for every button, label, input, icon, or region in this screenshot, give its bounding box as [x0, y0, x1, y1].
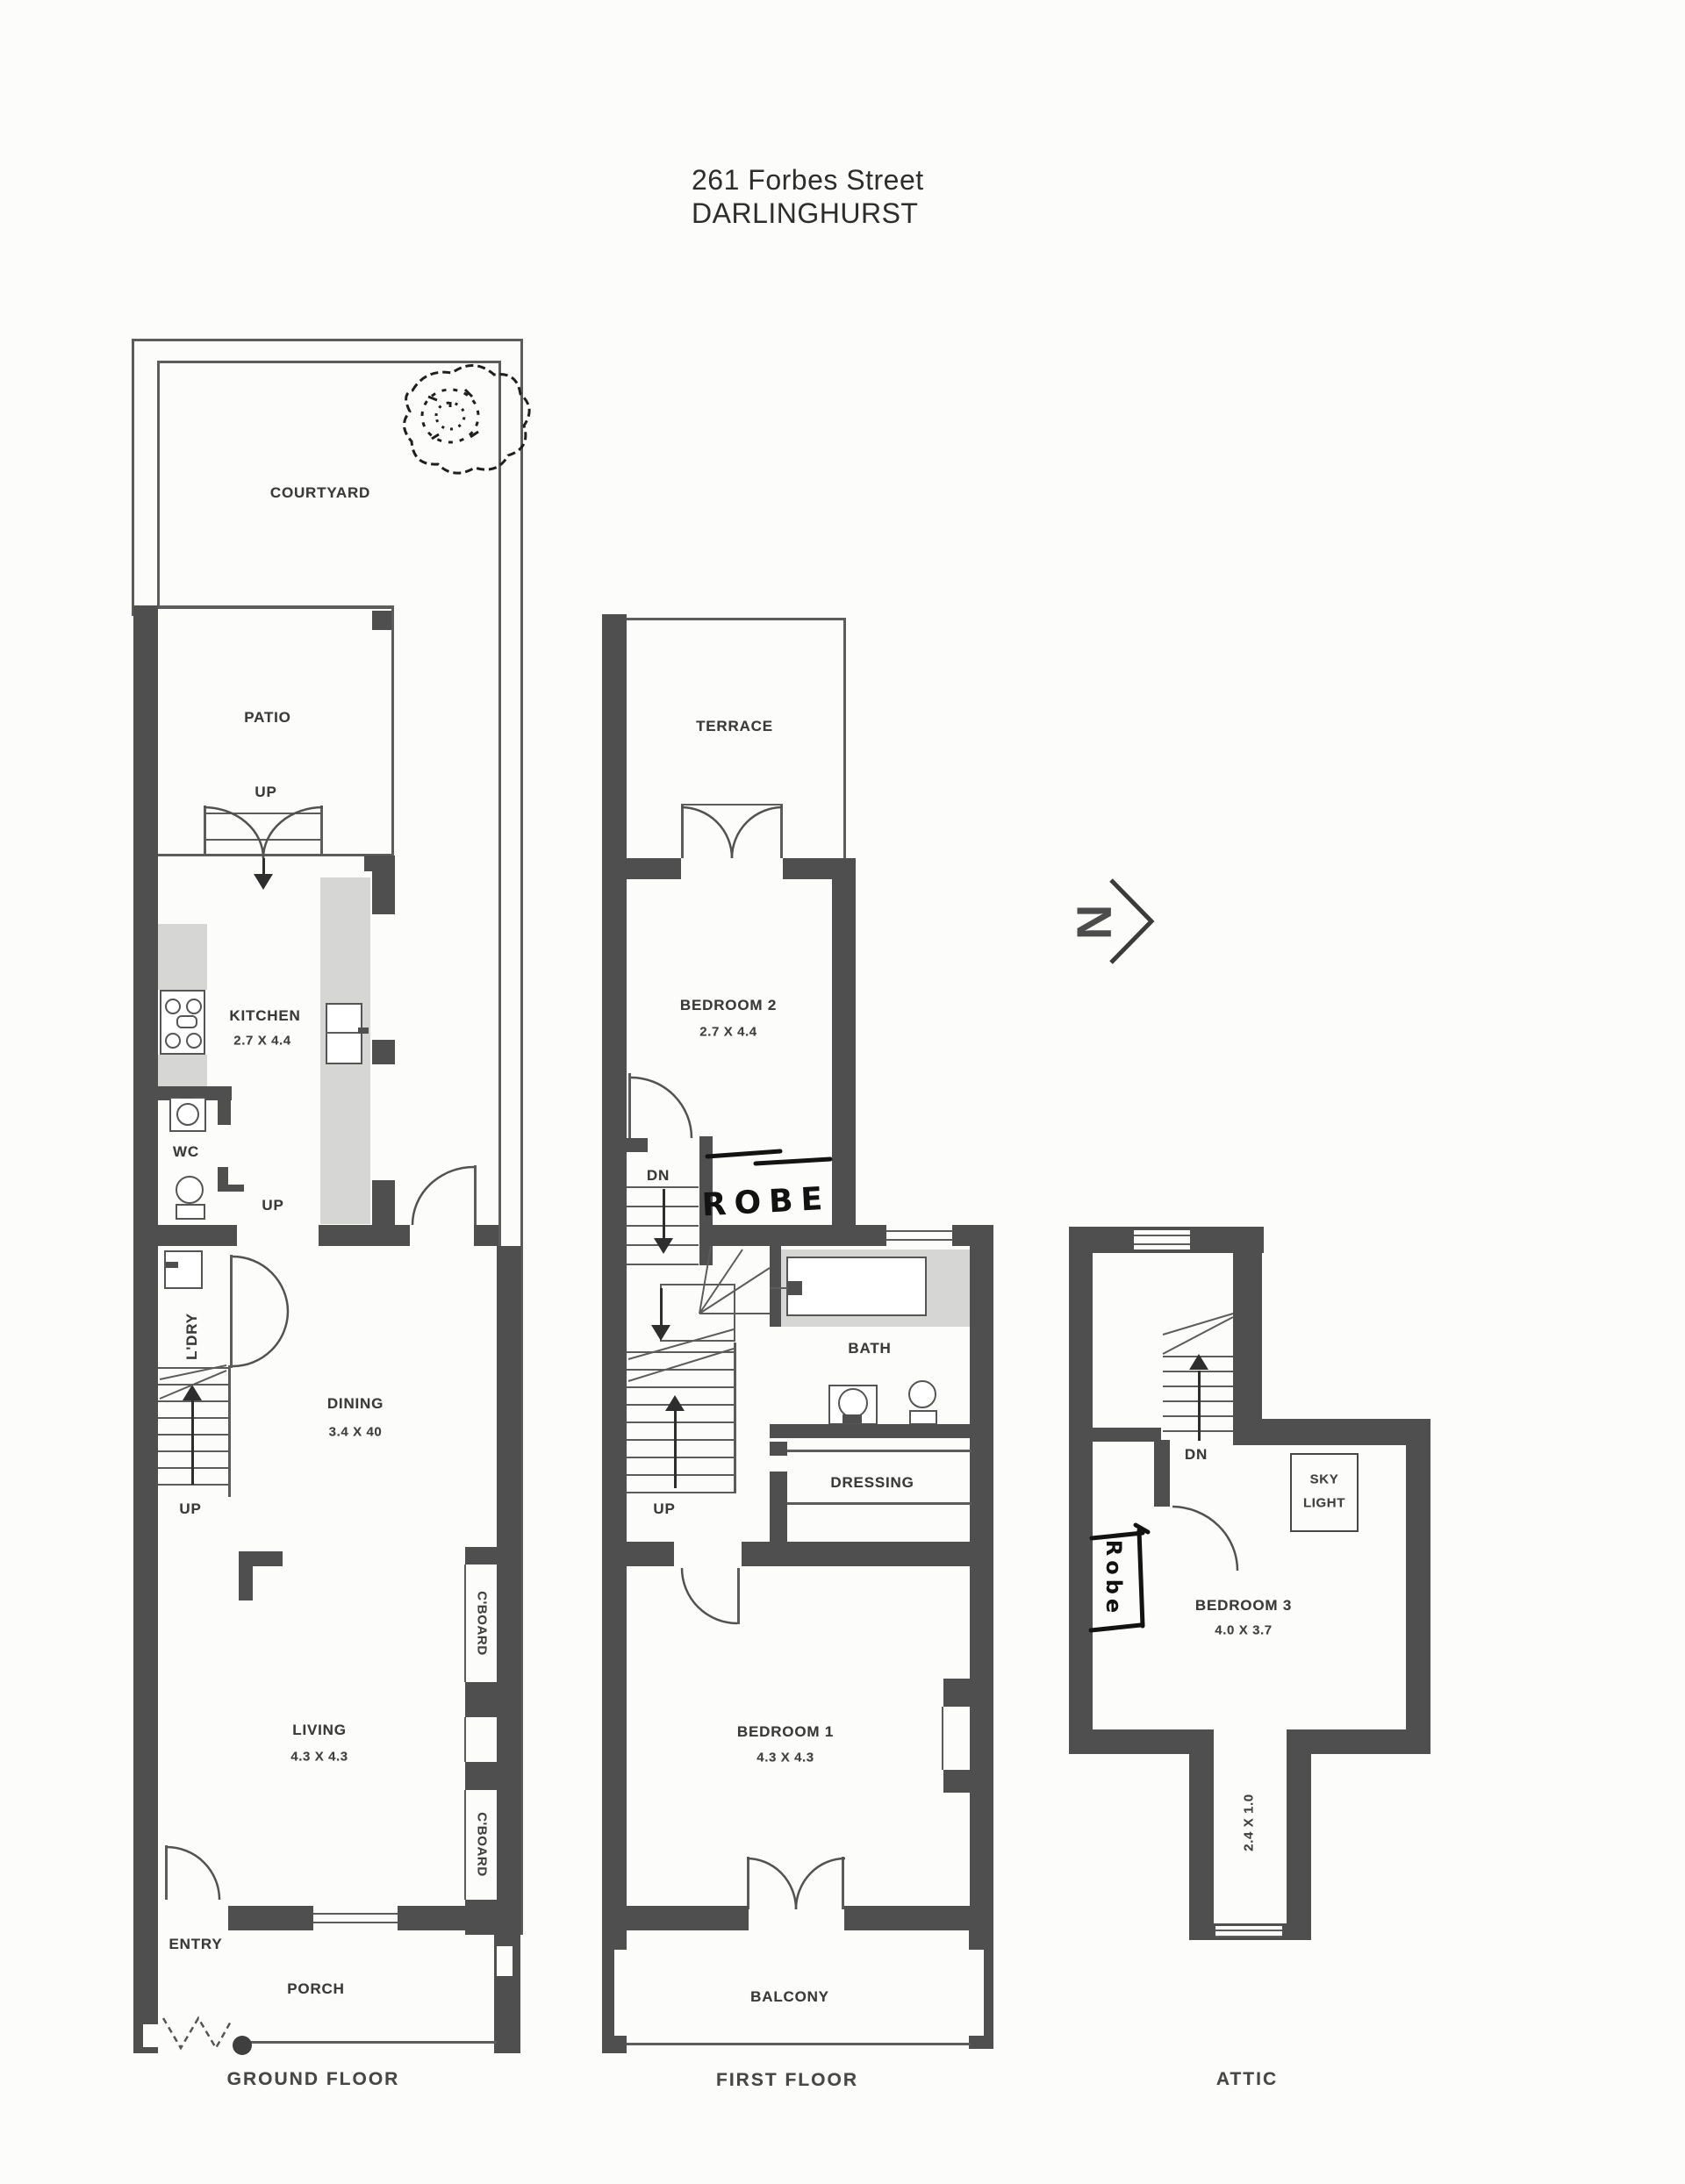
floorplan-page: 261 Forbes Street DARLINGHURST: [0, 0, 1685, 2184]
north-arrow-icon: [1111, 880, 1151, 963]
tree-icon: [404, 365, 529, 473]
porch-gate: [163, 2018, 252, 2055]
handwritten-strokes: [707, 1151, 1148, 1630]
linework-overlay: [0, 0, 1685, 2184]
stair-winder-lines: [160, 1246, 1233, 1399]
